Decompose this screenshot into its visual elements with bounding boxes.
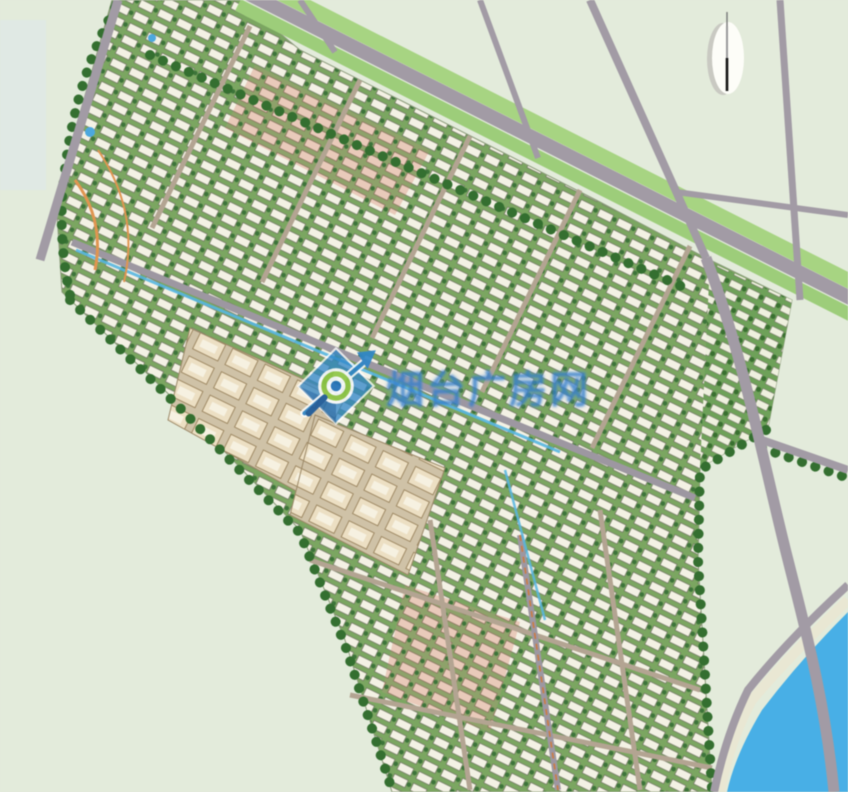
pond	[148, 34, 156, 42]
master-plan-map: 烟台广房网	[0, 0, 848, 792]
pond	[85, 127, 95, 137]
field-patch-left	[0, 20, 46, 190]
site-plan-canvas	[0, 0, 848, 792]
